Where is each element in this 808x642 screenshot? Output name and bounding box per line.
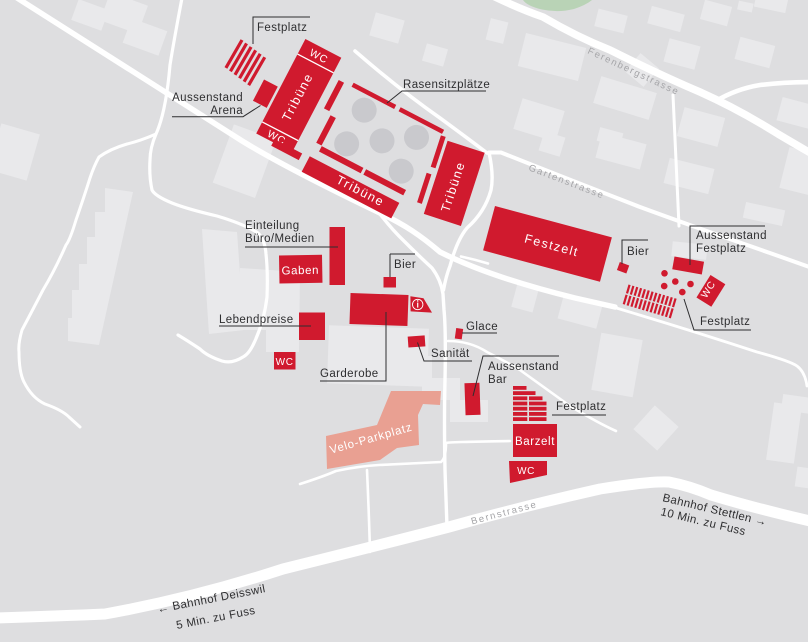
svg-text:Lebendpreise: Lebendpreise bbox=[219, 314, 294, 326]
svg-text:Barzelt: Barzelt bbox=[515, 436, 555, 448]
svg-text:Festplatz: Festplatz bbox=[700, 316, 750, 328]
svg-text:Aussenstand: Aussenstand bbox=[172, 92, 243, 104]
svg-text:Bar: Bar bbox=[488, 374, 507, 386]
svg-text:WC: WC bbox=[276, 357, 294, 368]
svg-text:Büro/Medien: Büro/Medien bbox=[245, 233, 315, 245]
svg-text:Bier: Bier bbox=[394, 259, 416, 271]
svg-text:WC: WC bbox=[517, 466, 535, 477]
svg-text:Sanität: Sanität bbox=[431, 348, 470, 360]
svg-text:Festplatz: Festplatz bbox=[696, 243, 746, 255]
svg-text:Aussenstand: Aussenstand bbox=[488, 361, 559, 373]
svg-text:Rasensitzplätze: Rasensitzplätze bbox=[403, 79, 490, 91]
svg-text:Einteilung: Einteilung bbox=[245, 220, 300, 232]
svg-text:Festplatz: Festplatz bbox=[257, 22, 307, 34]
svg-text:Glace: Glace bbox=[466, 321, 498, 333]
svg-text:Aussenstand: Aussenstand bbox=[696, 230, 767, 242]
svg-text:Bier: Bier bbox=[627, 246, 649, 258]
svg-text:Garderobe: Garderobe bbox=[320, 368, 379, 380]
svg-text:Gaben: Gaben bbox=[281, 265, 319, 278]
svg-text:Festplatz: Festplatz bbox=[556, 401, 606, 413]
svg-text:Arena: Arena bbox=[210, 105, 243, 117]
